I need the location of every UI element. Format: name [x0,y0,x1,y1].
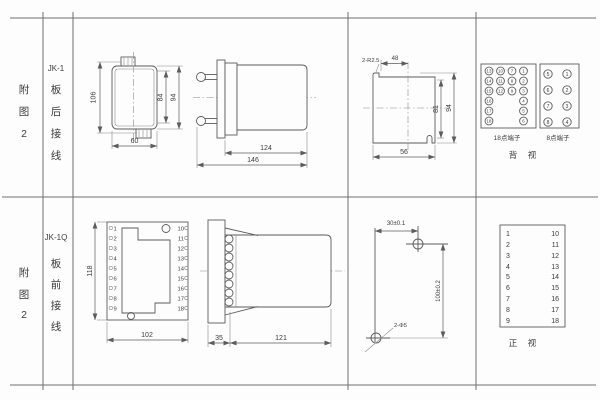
table-cell: 3 [506,253,510,260]
terminal-number: 1 [566,72,569,78]
view-label-char: 视 [528,338,537,348]
inner-contour [122,228,170,313]
front-view-label: 正 视 [509,338,537,348]
table-cell: 6 [506,285,510,292]
terminal-number: 9 [511,89,514,94]
terminal-number: 10 [178,227,184,233]
terminal-screw [225,253,233,261]
dim-label-118: 118 [87,265,94,276]
wiring-char: 线 [51,320,62,333]
dim-label-102: 102 [141,332,153,339]
wiring-char: 接 [51,127,62,140]
terminal-number: 15 [178,277,184,283]
dim-label-60: 60 [131,138,139,145]
table-cell: 8 [506,307,510,314]
terminal-number: 14 [178,267,185,273]
dim-label-94: 94 [171,94,178,102]
wiring-char: 板 [51,83,62,96]
jk1q-drill-plan: 30±0.1 100±0.2 2-Φ5 [365,221,448,352]
terminal-number: 7 [114,287,117,293]
fig-label-char: 附 [19,83,30,96]
terminal-screw [225,280,233,288]
terminal-number: 10 [498,69,503,74]
terminal-number: 17 [178,297,184,303]
terminal-stem [205,119,217,124]
terminal-number: 5 [547,72,550,78]
terminal-number: 7 [511,69,514,74]
table-cell: 14 [551,274,559,281]
terminal-screw [197,73,206,82]
terminal-number: 4 [566,120,569,126]
wiring-char: 前 [51,278,62,291]
terminal-number: 3 [566,104,569,110]
dim-label-124: 124 [260,145,272,152]
terminal-number: 18 [178,307,184,313]
view-label-char: 正 [509,338,518,348]
terminal-number: 2 [114,237,117,243]
terminal-number: 5 [522,109,525,114]
technical-drawing-canvas: 附 图 2 JK-1 板 后 接 线 106 84 94 60 [0,0,600,400]
dim-label-56: 56 [400,149,408,156]
table-cell: 11 [552,242,559,249]
terminal-number: 12 [498,89,503,94]
relay-body [237,65,307,130]
jk1-rear-terminal-18: 13 14 15 16 17 18 10 11 12 7 8 9 1 2 3 4… [481,64,536,142]
table-cell: 18 [551,318,559,325]
terminal-number: 15 [487,89,492,94]
terminal-number: 11 [178,237,184,243]
jk1-rear-terminal-8: 5 6 7 8 1 2 3 4 8点端子 [540,64,579,142]
terminal-number: 16 [487,99,492,104]
fig-label-char: 2 [21,309,27,321]
terminal-number: 16 [178,287,184,293]
terminal-number: 3 [114,247,117,253]
table-cell: 10 [551,231,559,238]
dim-label-35: 35 [215,335,223,342]
dim-label-100: 100±0.2 [436,280,442,302]
terminal-screw [225,235,233,243]
terminal-number: 13 [178,257,184,263]
dim-label-121: 121 [275,335,287,342]
drawing-sheet: 附 图 2 JK-1 板 后 接 线 106 84 94 60 [0,0,600,400]
terminal-number: 1 [114,227,117,233]
wiring-char: 接 [51,299,62,312]
table-cell: 12 [551,253,559,260]
fig-label-char: 附 [19,266,30,279]
terminal-number: 12 [178,247,184,253]
terminal-number: 17 [487,109,492,114]
terminal-screw [225,244,233,252]
rear-view-label: 背 视 [509,150,537,160]
terminal-number: 1 [522,69,525,74]
fig-label-char: 2 [21,128,27,140]
table-cell: 1 [506,231,510,238]
terminal-screw [225,289,233,297]
front-plate [208,220,225,323]
dim-label-94: 94 [446,104,453,112]
jk1-panel-cutout: 2-R2.5 48 81 94 56 [362,56,457,160]
terminal-screw [225,262,233,270]
dim-label-106: 106 [91,92,98,104]
corner-radius-label: 2-R2.5 [362,58,379,64]
terminal-stem [205,75,217,80]
mounting-hole [162,225,170,233]
table-cell: 17 [551,307,559,314]
terminal-number: 9 [114,307,117,313]
terminal-number: 6 [522,119,525,124]
mounting-hole [128,313,135,320]
terminal-number: 2 [566,88,569,94]
wiring-char: 后 [51,106,62,118]
jk1q-terminal-table: 1 2 3 4 5 6 7 8 9 10 11 12 13 14 15 16 1… [500,225,565,327]
terminal-screw [225,271,233,279]
dim-label-48: 48 [392,56,399,62]
bottom-tab [136,129,151,138]
table-cell: 5 [506,274,510,281]
terminal-screw [225,298,233,306]
model-label: JK-1Q [45,233,68,242]
terminal-number: 6 [114,277,117,283]
terminal-number: 11 [498,79,503,84]
terminal-number: 8 [511,79,514,84]
terminal-number: 8 [547,120,550,126]
jk1q-front-view: 1 2 3 4 5 6 7 8 9 10 11 12 13 14 15 16 1… [87,222,188,343]
table-cell: 4 [506,264,510,271]
jk1q-side-view: 35 121 [200,220,345,347]
terminal-screw [197,117,206,126]
wiring-char: 线 [51,149,62,162]
terminal-number: 4 [114,257,118,263]
terminal-number: 7 [547,104,550,110]
terminal-8-caption: 8点端子 [546,133,570,142]
view-label-char: 背 [509,150,518,160]
table-cell: 2 [506,242,510,249]
dim-label-30: 30±0.1 [387,221,406,227]
terminal-number: 2 [522,79,525,84]
relay-body [225,235,331,307]
fig-label-char: 图 [19,289,30,301]
terminal-number: 4 [522,99,525,104]
terminal-number: 6 [547,88,550,94]
top-row-labels: 附 图 2 JK-1 板 后 接 线 [19,64,65,162]
table-cell: 13 [551,264,559,271]
table-cell: 7 [506,296,510,303]
terminal-18-caption: 18点端子 [494,133,521,142]
model-label: JK-1 [48,64,65,73]
table-cell: 15 [551,285,559,292]
wiring-char: 板 [51,257,62,270]
table-cell: 16 [551,296,559,303]
terminal-number: 13 [487,69,492,74]
terminal-number: 14 [487,79,492,84]
hole-diameter-label: 2-Φ5 [394,323,407,329]
table-cell: 9 [506,318,510,325]
terminal-number: 3 [522,89,525,94]
terminal-number: 5 [114,267,117,273]
dim-label-81: 81 [433,105,440,113]
jk1-front-view: 106 84 94 60 [91,52,184,149]
terminal-number: 8 [114,297,117,303]
dim-label-146: 146 [247,157,259,164]
view-label-char: 视 [528,150,537,160]
dim-label-84: 84 [158,94,165,102]
fig-label-char: 图 [19,106,30,118]
terminal-number: 18 [487,119,492,124]
jk1-side-view: 124 146 [193,60,316,168]
